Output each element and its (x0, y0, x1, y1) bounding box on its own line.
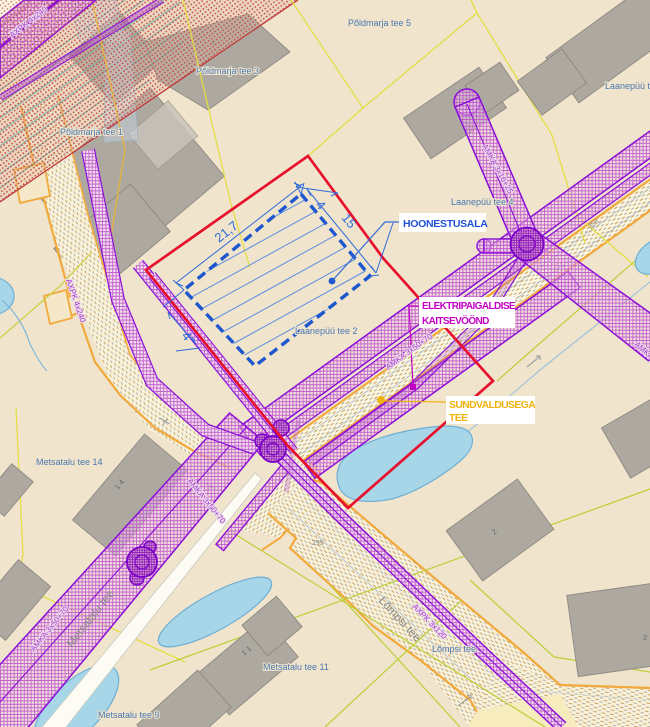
svg-text:HOONESTUSALA: HOONESTUSALA (403, 218, 488, 230)
svg-text:SUNDVALDUSEGA: SUNDVALDUSEGA (449, 400, 536, 411)
svg-text:Metsatalu tee 11: Metsatalu tee 11 (263, 662, 329, 672)
svg-text:Metsatalu tee 14: Metsatalu tee 14 (36, 457, 103, 467)
svg-text:295: 295 (312, 540, 324, 547)
svg-text:KAITSEVÖÖND: KAITSEVÖÖND (422, 314, 489, 327)
svg-text:Põldmarja tee 1: Põldmarja tee 1 (60, 127, 123, 137)
svg-text:Põldmarja tee 5: Põldmarja tee 5 (348, 18, 411, 28)
svg-text:Metsatalu tee 9: Metsatalu tee 9 (98, 710, 160, 720)
svg-text:TEE: TEE (449, 413, 468, 424)
svg-text:Laanepüü tee 2: Laanepüü tee 2 (295, 326, 358, 336)
svg-text:Põldmarja tee 3: Põldmarja tee 3 (196, 66, 259, 76)
svg-text:Lõmpsi tee: Lõmpsi tee (432, 644, 476, 654)
svg-text:Laanepüü tee 4: Laanepüü tee 4 (451, 197, 514, 207)
svg-text:2: 2 (643, 633, 647, 642)
svg-text:ELEKTRIPAIGALDISE: ELEKTRIPAIGALDISE (422, 301, 516, 312)
svg-text:Laanepüü tee: Laanepüü tee (605, 81, 650, 91)
